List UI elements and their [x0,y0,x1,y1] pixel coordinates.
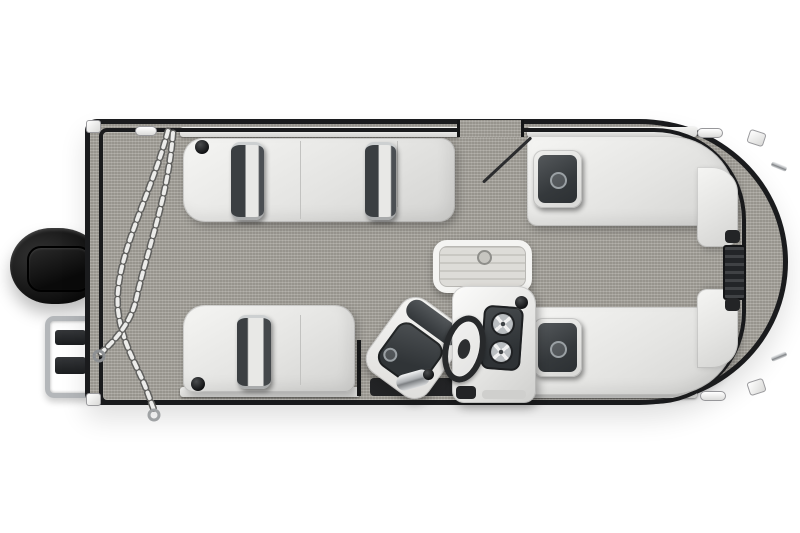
stern-gate-divider [357,340,361,396]
bow-gate-hinge [725,298,740,311]
chain-shackle [94,351,104,361]
cushion-seam [397,141,398,207]
brand-logo-icon [550,341,567,358]
cushion-seam [300,315,301,385]
gate-post [457,120,460,137]
bow-gate [723,245,746,300]
gate-post [521,120,524,137]
throttle-knob [423,369,434,380]
gauge-cluster [492,313,513,334]
mooring-cleat [697,128,723,138]
cupholder [195,140,209,154]
port-stern-lounge [183,138,455,222]
brand-logo-icon [550,172,567,189]
bow-gate-hinge [725,230,740,243]
gauge-cluster [490,341,511,362]
bow-cleat-hook [771,351,788,362]
console-base-ledge [482,390,526,399]
bow-corner-cap [746,378,766,397]
bow-corner-cap [746,129,766,148]
side-gate-opening [457,120,523,137]
pontoon-floorplan-image [0,0,800,533]
mooring-cleat [700,391,726,401]
console-base-trim [456,386,476,399]
cushion-seam [300,141,301,219]
headrest-pillow [237,315,271,389]
wheel-hub [456,338,472,360]
bow-cleat-hook [771,161,788,172]
table-latch [477,250,492,265]
headrest [533,318,582,377]
headrest-pillow [365,142,396,220]
chain-strand [101,131,173,410]
headrest [533,150,582,208]
chain-hook [149,410,159,420]
gauge-panel [480,305,524,372]
anchor-chain [80,118,195,430]
console-vent [515,296,528,309]
headrest-pillow [231,142,264,220]
